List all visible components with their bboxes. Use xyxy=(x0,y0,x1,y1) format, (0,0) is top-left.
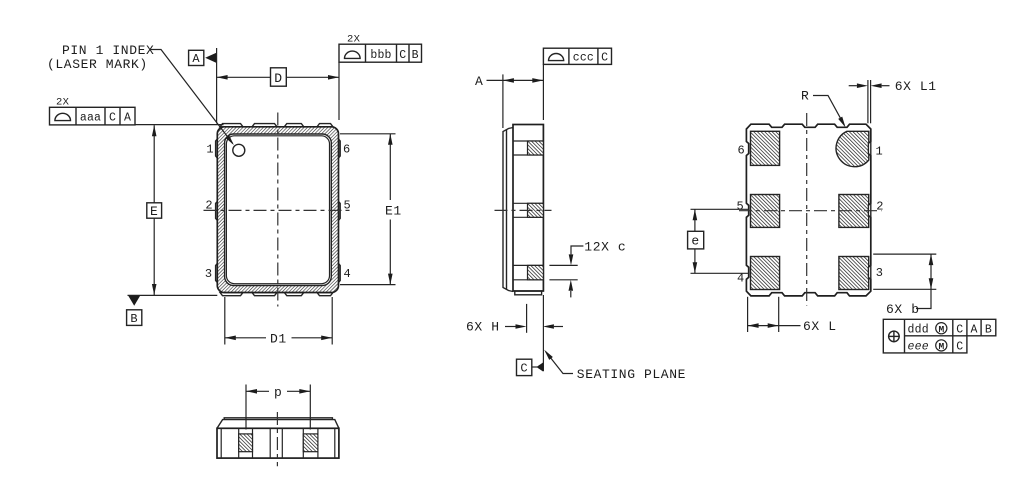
svg-text:B: B xyxy=(412,49,419,62)
svg-text:5: 5 xyxy=(737,200,745,214)
svg-text:A: A xyxy=(192,52,200,66)
svg-text:M: M xyxy=(938,341,944,352)
svg-text:R: R xyxy=(801,89,809,104)
svg-text:C: C xyxy=(399,49,406,62)
svg-text:4: 4 xyxy=(344,267,352,281)
svg-text:6: 6 xyxy=(343,143,351,157)
svg-text:6: 6 xyxy=(738,144,746,158)
svg-text:SEATING PLANE: SEATING PLANE xyxy=(577,367,686,382)
svg-text:6X H: 6X H xyxy=(466,320,500,335)
svg-text:6X L1: 6X L1 xyxy=(895,79,937,94)
svg-text:3: 3 xyxy=(876,266,884,280)
svg-text:6X L: 6X L xyxy=(803,319,837,334)
svg-text:p: p xyxy=(274,385,282,400)
svg-text:aaa: aaa xyxy=(80,112,101,125)
svg-text:C: C xyxy=(956,341,963,354)
svg-text:A: A xyxy=(124,112,131,125)
svg-text:2: 2 xyxy=(205,198,213,212)
svg-text:(LASER MARK): (LASER MARK) xyxy=(47,57,148,72)
svg-text:D1: D1 xyxy=(270,331,287,346)
svg-text:5: 5 xyxy=(344,198,352,212)
svg-text:D: D xyxy=(274,71,282,86)
svg-text:1: 1 xyxy=(206,143,214,157)
svg-text:2: 2 xyxy=(876,200,884,214)
svg-text:C: C xyxy=(109,112,116,125)
svg-text:C: C xyxy=(956,324,963,337)
svg-text:12X c: 12X c xyxy=(584,240,626,255)
svg-text:1: 1 xyxy=(876,145,884,159)
svg-text:ddd: ddd xyxy=(908,324,929,337)
svg-text:e: e xyxy=(691,234,699,249)
svg-text:bbb: bbb xyxy=(370,49,391,62)
svg-text:C: C xyxy=(601,51,608,64)
svg-text:E: E xyxy=(150,204,158,219)
svg-text:C: C xyxy=(520,362,528,376)
svg-text:B: B xyxy=(985,324,992,337)
svg-text:B: B xyxy=(130,312,138,326)
svg-text:A: A xyxy=(970,324,977,337)
svg-text:ccc: ccc xyxy=(573,51,594,64)
svg-text:M: M xyxy=(938,324,944,335)
svg-text:E1: E1 xyxy=(385,204,402,219)
svg-text:A: A xyxy=(475,74,483,89)
svg-text:PIN 1 INDEX: PIN 1 INDEX xyxy=(62,43,154,58)
svg-text:6X b: 6X b xyxy=(886,302,920,317)
svg-text:3: 3 xyxy=(205,267,213,281)
svg-text:eee: eee xyxy=(908,341,929,354)
